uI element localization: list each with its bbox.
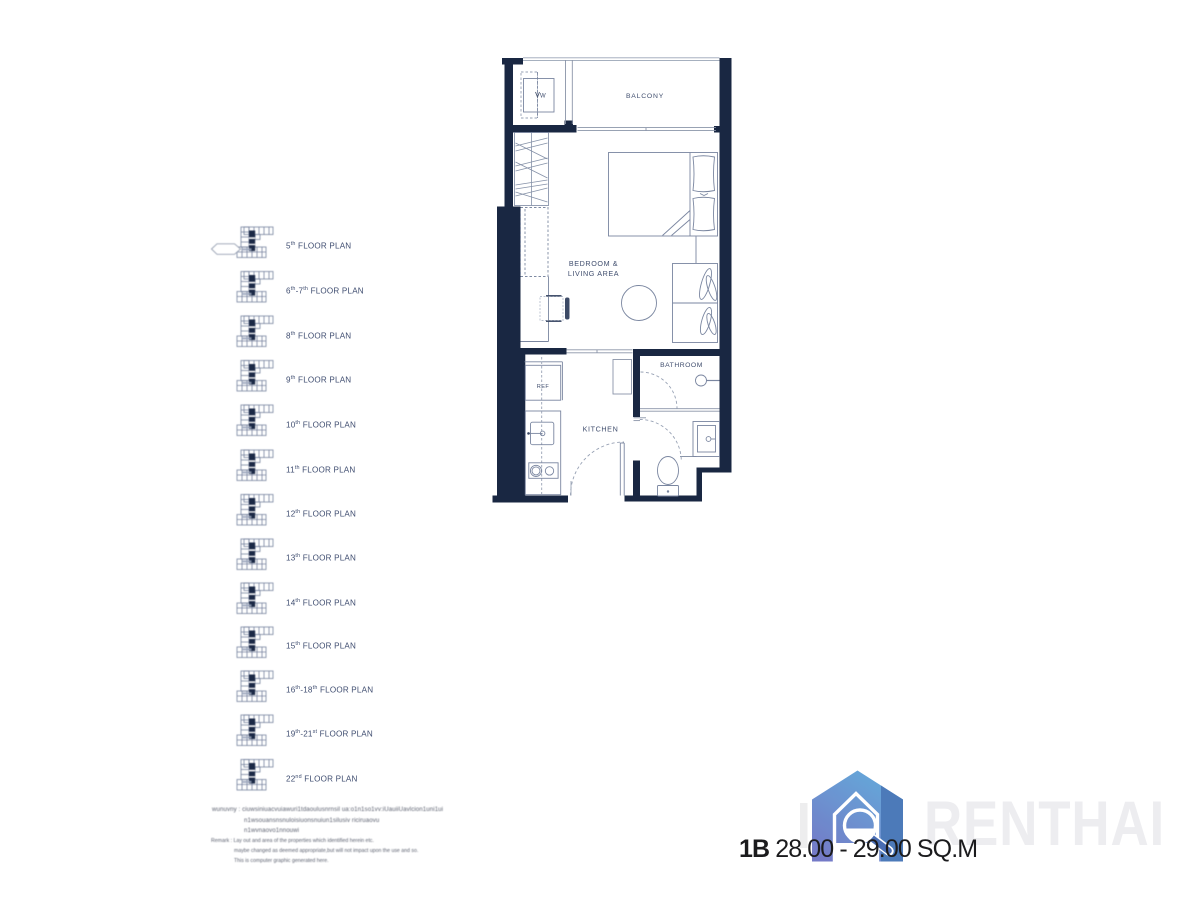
svg-text:LIVING AREA: LIVING AREA — [568, 269, 619, 278]
svg-text:BEDROOM &: BEDROOM & — [569, 259, 618, 268]
svg-text:REF: REF — [537, 384, 550, 390]
svg-text:BATHROOM: BATHROOM — [660, 362, 703, 369]
svg-text:W: W — [540, 94, 546, 100]
svg-text:KITCHEN: KITCHEN — [583, 425, 619, 434]
svg-text:BALCONY: BALCONY — [626, 93, 664, 100]
